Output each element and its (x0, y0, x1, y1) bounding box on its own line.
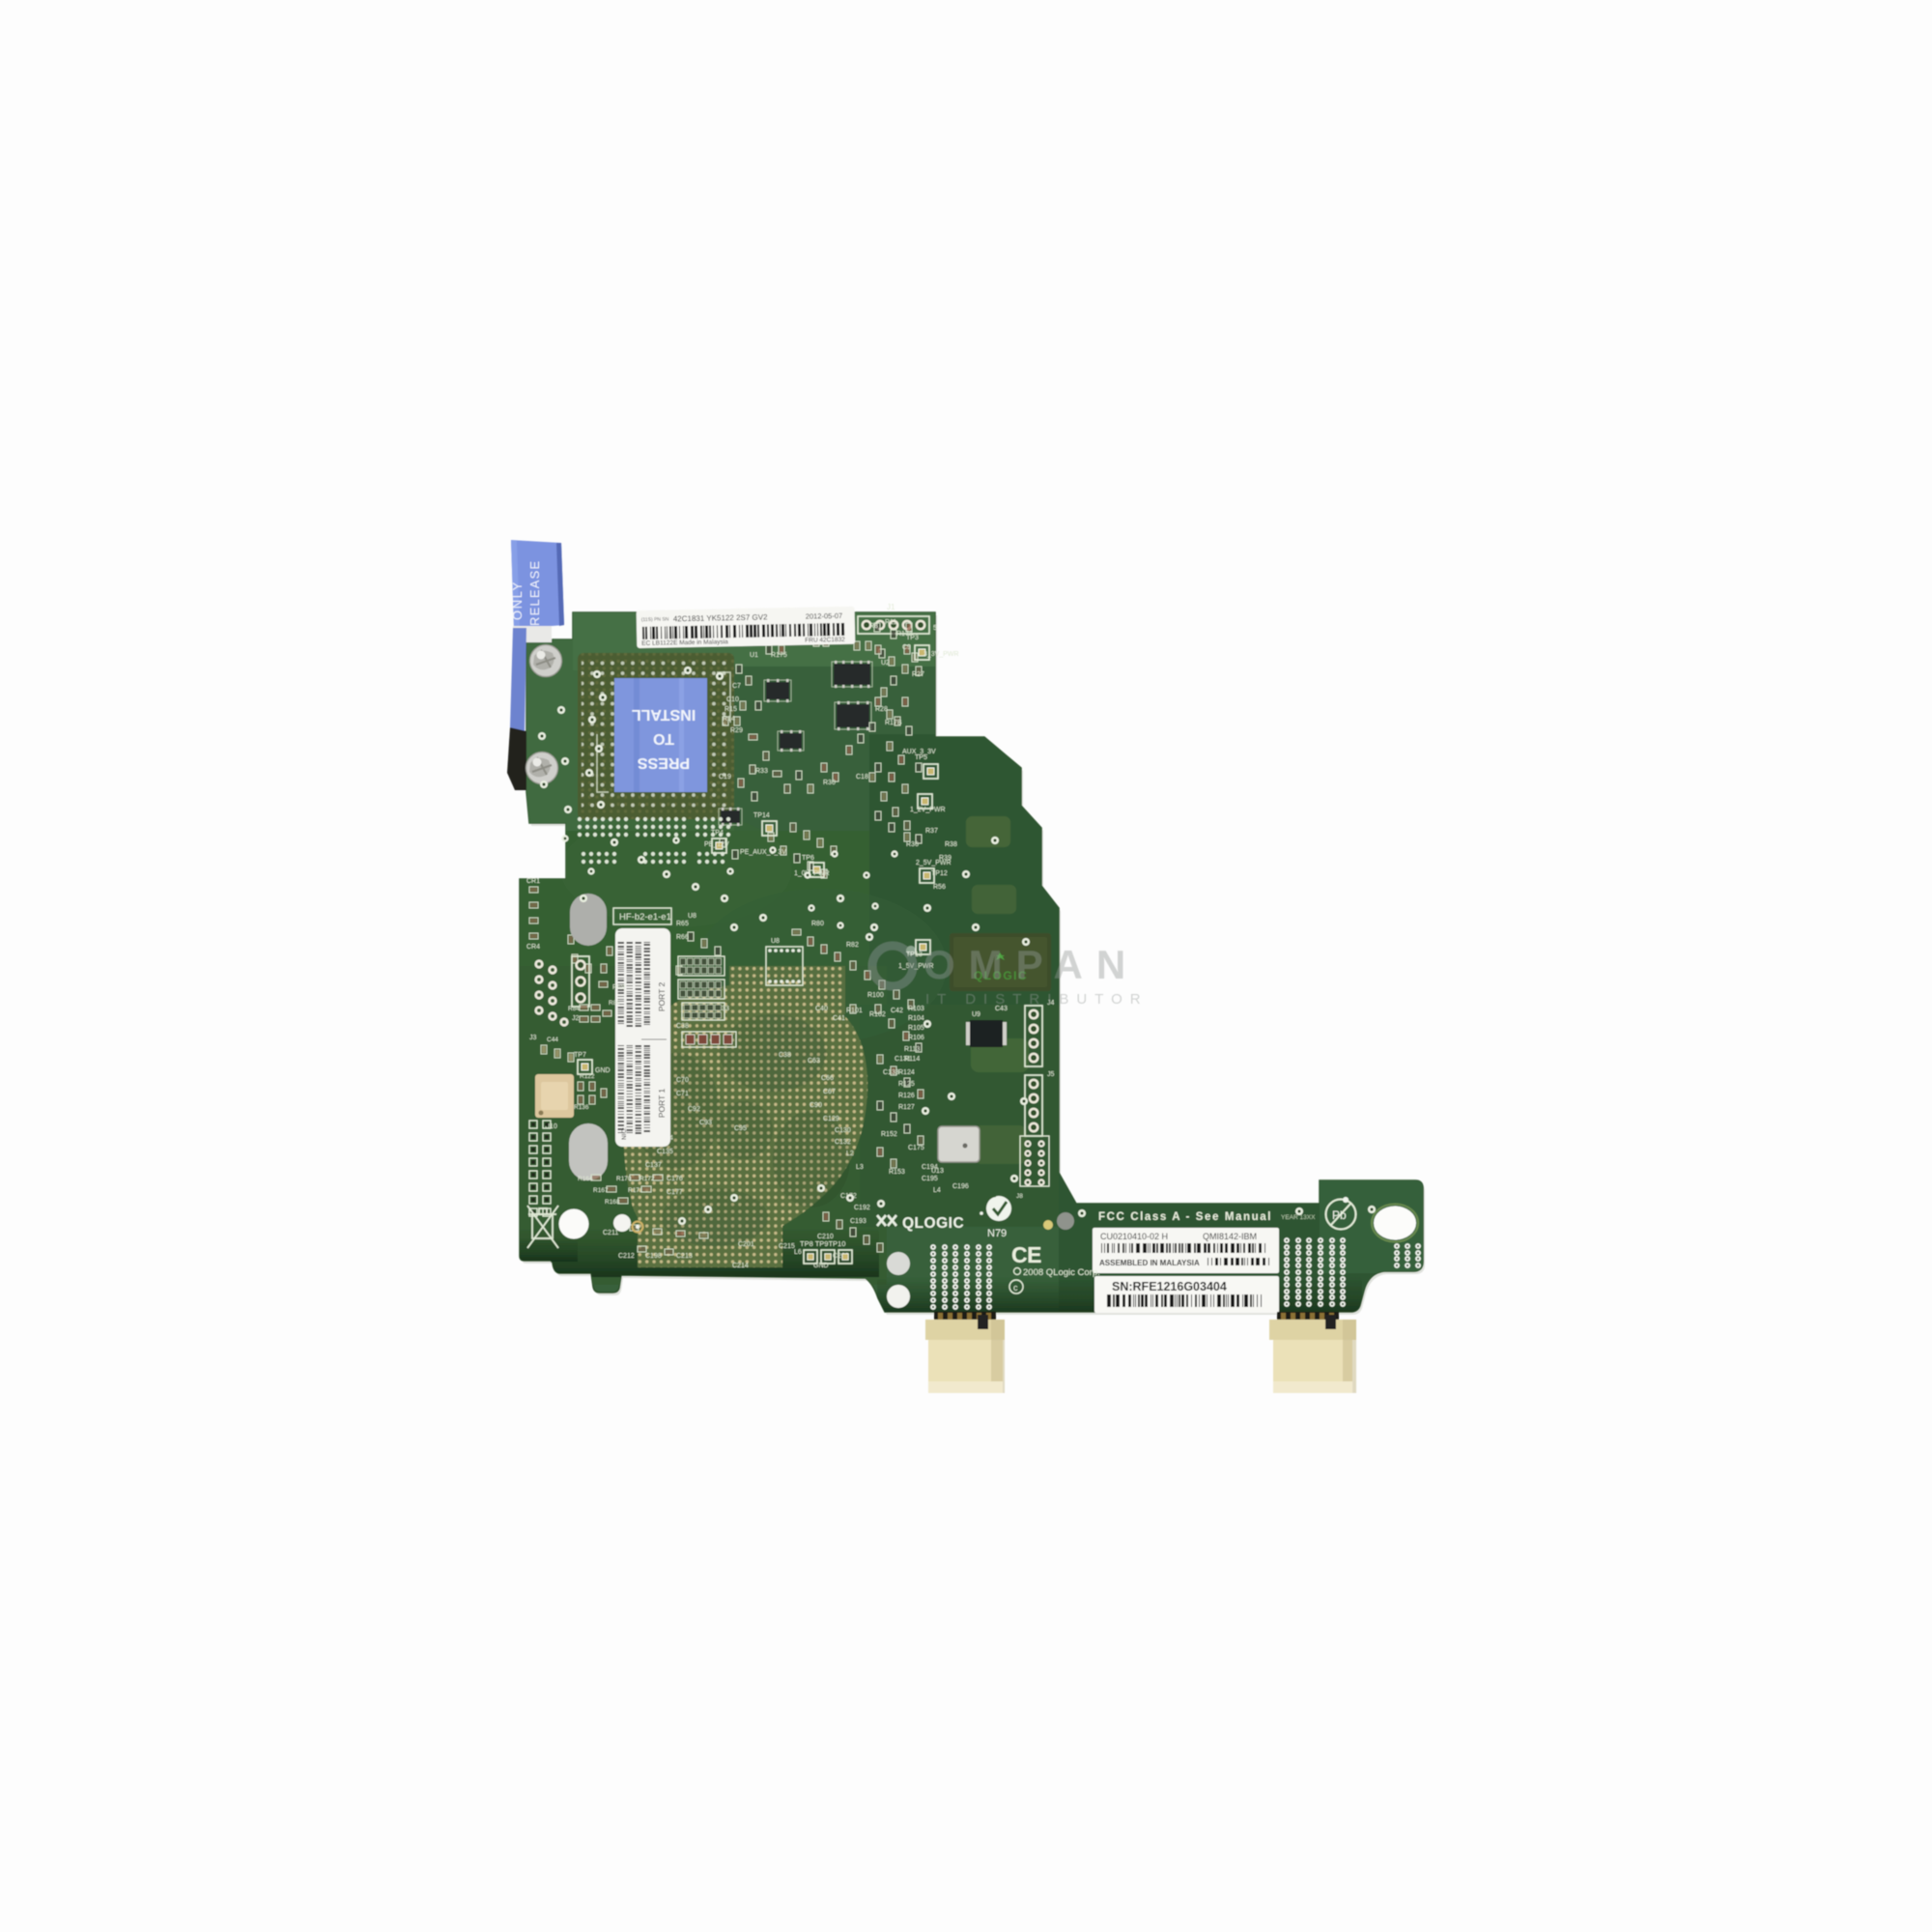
svg-text:C133: C133 (883, 1069, 899, 1076)
svg-text:R152: R152 (881, 1131, 897, 1138)
svg-text:C38: C38 (676, 1023, 689, 1030)
svg-text:C41: C41 (833, 1015, 845, 1022)
svg-text:R36: R36 (906, 841, 919, 848)
svg-text:J3: J3 (529, 1035, 537, 1041)
svg-text:C195: C195 (922, 1176, 938, 1182)
svg-text:C42: C42 (891, 1008, 903, 1014)
svg-text:U8: U8 (688, 913, 696, 920)
svg-text:C130: C130 (835, 1127, 851, 1134)
svg-text:PE_AUX_3_3V: PE_AUX_3_3V (740, 849, 786, 856)
svg-text:C92: C92 (688, 1106, 700, 1113)
svg-text:PRESS: PRESS (638, 754, 691, 771)
svg-text:C131: C131 (895, 1056, 911, 1063)
svg-text:R37: R37 (925, 828, 938, 835)
svg-text:C10: C10 (726, 696, 739, 703)
svg-text:R66: R66 (676, 934, 689, 941)
svg-text:R11: R11 (885, 619, 896, 626)
svg-text:R86: R86 (609, 1000, 620, 1007)
svg-text:R39: R39 (939, 855, 952, 862)
svg-text:QLOGIC: QLOGIC (902, 1215, 964, 1232)
svg-text:C135: C135 (657, 1149, 673, 1155)
svg-text:FCC Class A - See Manual: FCC Class A - See Manual (1098, 1211, 1272, 1223)
svg-text:CE: CE (1011, 1242, 1041, 1267)
svg-text:1_0V_PWR: 1_0V_PWR (794, 870, 830, 877)
svg-text:R122: R122 (580, 1073, 595, 1080)
svg-text:QMI8142-IBM: QMI8142-IBM (1203, 1232, 1257, 1241)
svg-text:L3: L3 (856, 1164, 864, 1171)
svg-text:C66: C66 (821, 1075, 834, 1082)
svg-text:C212: C212 (618, 1253, 635, 1260)
svg-text:C196: C196 (952, 1183, 969, 1190)
svg-text:SN:RFE1216G03404: SN:RFE1216G03404 (1112, 1280, 1227, 1293)
svg-text:R82: R82 (846, 942, 859, 949)
svg-text:C177: C177 (667, 1189, 683, 1196)
svg-text:C175: C175 (908, 1145, 924, 1151)
svg-text:R173: R173 (896, 631, 913, 638)
svg-text:R164: R164 (578, 1176, 593, 1182)
svg-text:R33: R33 (755, 768, 768, 775)
svg-text:YEAR 13XX: YEAR 13XX (1281, 1214, 1316, 1221)
svg-text:J8: J8 (1016, 1193, 1023, 1200)
svg-text:U2: U2 (881, 660, 890, 667)
svg-text:R105: R105 (908, 1025, 924, 1032)
svg-text:C18: C18 (856, 774, 868, 781)
svg-text:C201: C201 (738, 1241, 754, 1248)
svg-text:TO: TO (653, 730, 674, 747)
svg-text:C95: C95 (734, 1125, 747, 1132)
svg-text:NIC:: NIC: (621, 1127, 628, 1140)
svg-text:c: c (1013, 1283, 1018, 1293)
svg-text:C137: C137 (645, 1162, 662, 1169)
svg-text:R8: R8 (869, 623, 878, 630)
svg-text:R69: R69 (612, 984, 625, 991)
svg-text:PE_12V: PE_12V (704, 841, 729, 848)
svg-text:R126: R126 (898, 1093, 915, 1099)
svg-text:3_3V_PWR: 3_3V_PWR (923, 651, 959, 658)
svg-text:Pb: Pb (1332, 1208, 1347, 1222)
svg-text:IT DISTRIBUTOR: IT DISTRIBUTOR (925, 991, 1149, 1008)
svg-text:R56: R56 (933, 884, 946, 891)
svg-text:J1: J1 (887, 603, 895, 611)
svg-text:C215: C215 (779, 1243, 795, 1250)
svg-text:L6: L6 (794, 1249, 802, 1256)
svg-text:R104: R104 (908, 1015, 924, 1022)
svg-text:(11S) PN SN: (11S) PN SN (641, 616, 669, 623)
svg-text:C70: C70 (676, 1077, 689, 1084)
svg-text:L4: L4 (933, 1187, 941, 1194)
svg-text:AUX_3_3V: AUX_3_3V (902, 749, 936, 755)
svg-text:R101: R101 (846, 1008, 863, 1014)
svg-text:C192: C192 (854, 1205, 870, 1211)
svg-text:2012-05-07: 2012-05-07 (806, 611, 843, 621)
svg-text:FRU 42C1832: FRU 42C1832 (805, 637, 845, 644)
svg-text:C214: C214 (732, 1263, 749, 1269)
svg-text:R17B: R17B (885, 720, 902, 726)
svg-text:C129: C129 (823, 1116, 839, 1122)
svg-text:INSTALL: INSTALL (632, 706, 696, 723)
svg-text:GND: GND (595, 1067, 611, 1074)
svg-text:R124: R124 (898, 1069, 915, 1076)
svg-text:C193: C193 (850, 1218, 867, 1225)
svg-text:ONLY: ONLY (510, 581, 525, 620)
svg-text:R125: R125 (898, 1081, 915, 1088)
svg-text:R65: R65 (676, 921, 689, 927)
svg-text:R153: R153 (889, 1169, 905, 1176)
svg-text:HF-b2-e1-e1: HF-b2-e1-e1 (619, 912, 671, 923)
svg-text:R84: R84 (568, 1006, 580, 1012)
svg-text:C9: C9 (902, 644, 911, 651)
svg-text:TP8 TP9TP10: TP8 TP9TP10 (800, 1239, 845, 1248)
svg-text:C44: C44 (547, 1037, 558, 1043)
svg-text:TP14: TP14 (753, 812, 770, 819)
svg-text:TP6: TP6 (802, 855, 814, 862)
svg-text:C71: C71 (676, 1091, 689, 1097)
svg-text:C63: C63 (808, 1058, 820, 1065)
svg-text:R100: R100 (867, 992, 884, 999)
svg-text:R175: R175 (771, 652, 787, 659)
svg-text:OMPAN: OMPAN (923, 942, 1139, 987)
svg-text:C7: C7 (732, 683, 741, 690)
svg-text:R136: R136 (574, 1104, 589, 1111)
svg-text:R167: R167 (593, 1187, 609, 1194)
svg-text:J2: J2 (572, 1015, 580, 1022)
svg-text:R29: R29 (730, 727, 743, 734)
svg-text:CR4: CR4 (526, 944, 540, 951)
svg-text:TP5: TP5 (915, 754, 927, 761)
svg-text:C198: C198 (645, 1253, 662, 1260)
svg-text:C176: C176 (667, 1176, 683, 1182)
svg-text:C19: C19 (719, 774, 731, 781)
svg-text:TP12: TP12 (931, 870, 948, 877)
svg-text:CR1: CR1 (526, 878, 540, 885)
svg-text:R170: R170 (616, 1176, 632, 1182)
svg-text:L2: L2 (846, 1151, 854, 1157)
svg-text:U1: U1 (750, 652, 758, 659)
svg-text:R27: R27 (912, 671, 924, 678)
svg-text:C40: C40 (815, 1006, 828, 1012)
svg-text:U8: U8 (771, 938, 780, 945)
svg-text:R106: R106 (908, 1035, 924, 1041)
svg-text:R168: R168 (605, 1199, 620, 1206)
svg-text:PORT 1: PORT 1 (657, 1089, 667, 1119)
svg-text:C90: C90 (810, 1102, 822, 1109)
svg-text:C38: C38 (779, 1052, 791, 1059)
svg-text:R80: R80 (811, 921, 824, 927)
svg-text:5: 5 (933, 625, 937, 632)
svg-text:R15: R15 (724, 706, 737, 713)
svg-text:R14: R14 (723, 716, 735, 723)
svg-text:2008 QLogic Corp.: 2008 QLogic Corp. (1023, 1267, 1100, 1278)
svg-text:C67: C67 (823, 1089, 836, 1095)
svg-text:PORT 2: PORT 2 (657, 982, 667, 1012)
svg-text:GND: GND (813, 1263, 829, 1269)
svg-text:1_2V_PWR: 1_2V_PWR (910, 807, 946, 813)
svg-text:R172: R172 (639, 1176, 655, 1182)
svg-text:CU0210410-02 H: CU0210410-02 H (1100, 1232, 1168, 1241)
svg-text:R102: R102 (869, 1011, 886, 1018)
svg-text:R38: R38 (945, 841, 957, 848)
svg-text:R171: R171 (628, 1187, 643, 1194)
svg-text:C213: C213 (676, 1253, 693, 1260)
svg-text:R127: R127 (898, 1104, 915, 1111)
svg-text:ASSEMBLED IN MALAYSIA: ASSEMBLED IN MALAYSIA (1099, 1259, 1200, 1267)
svg-text:RELEASE: RELEASE (527, 560, 542, 626)
svg-text:42C1831 YK5122 2S7 GV2: 42C1831 YK5122 2S7 GV2 (673, 612, 768, 623)
svg-text:R30: R30 (823, 780, 836, 786)
svg-text:C211: C211 (603, 1230, 618, 1236)
svg-text:TP7: TP7 (574, 1052, 586, 1059)
svg-text:U13: U13 (931, 1168, 944, 1175)
svg-text:U9: U9 (972, 1011, 980, 1018)
svg-text:N79: N79 (987, 1228, 1007, 1239)
svg-text:R28: R28 (875, 706, 888, 713)
svg-text:C93: C93 (699, 1120, 712, 1126)
svg-text:R103: R103 (908, 1006, 924, 1012)
svg-text:J5: J5 (1047, 1071, 1055, 1078)
svg-text:C132: C132 (835, 1139, 851, 1146)
svg-text:R113: R113 (904, 1046, 920, 1053)
